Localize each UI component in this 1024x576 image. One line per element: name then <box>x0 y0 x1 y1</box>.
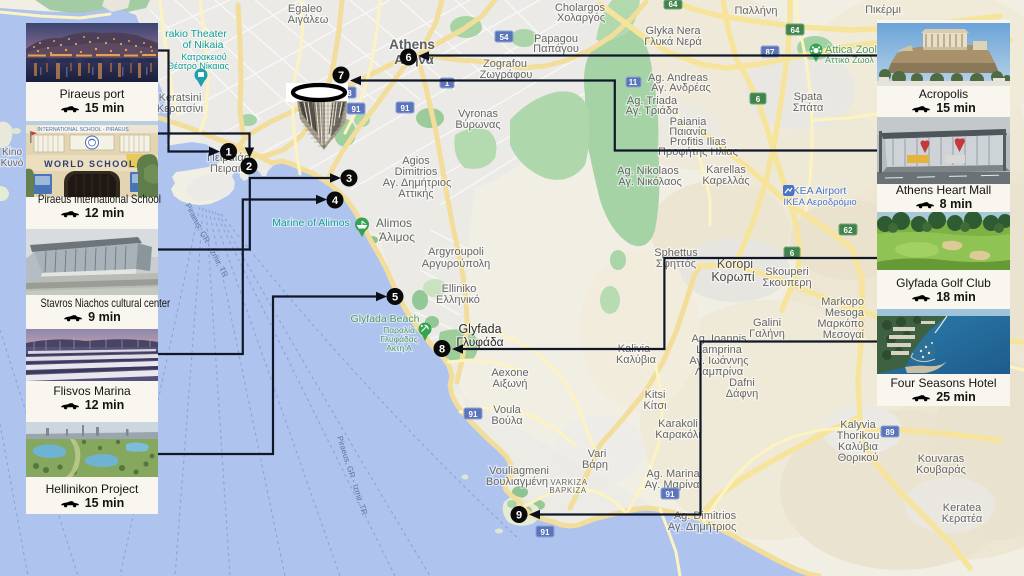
svg-text:Marine of Alimos: Marine of Alimos <box>272 217 350 229</box>
svg-text:Βουλιαγμένη: Βουλιαγμένη <box>486 476 548 488</box>
svg-text:Αγ. Δημήτριος: Αγ. Δημήτριος <box>668 521 737 533</box>
svg-text:64: 64 <box>669 0 678 9</box>
svg-text:WORLD SCHOOL: WORLD SCHOOL <box>44 159 136 169</box>
svg-text:Alimos: Alimos <box>376 216 412 230</box>
svg-text:Ελληνικό: Ελληνικό <box>436 294 480 306</box>
svg-text:6: 6 <box>790 249 795 258</box>
svg-text:Δάφνη: Δάφνη <box>726 388 758 400</box>
svg-text:Βάρη: Βάρη <box>582 459 608 471</box>
svg-text:Μεσογαί: Μεσογαί <box>823 329 865 341</box>
svg-text:INTERNATIONAL SCHOOL - PIRAEUS: INTERNATIONAL SCHOOL - PIRAEUS <box>37 127 129 133</box>
svg-text:91: 91 <box>541 528 550 537</box>
svg-text:Αγ. Ανδρέας: Αγ. Ανδρέας <box>651 82 711 94</box>
svg-text:7: 7 <box>338 70 344 82</box>
svg-text:Προφήτης Ηλίας: Προφήτης Ηλίας <box>658 146 738 158</box>
svg-text:Κερατέα: Κερατέα <box>942 513 983 525</box>
svg-text:Παπάγου: Παπάγου <box>533 43 579 55</box>
svg-text:ΙΚΕΑ Αεροδρόμιο: ΙΚΕΑ Αεροδρόμιο <box>783 197 856 208</box>
svg-text:Ζωγράφου: Ζωγράφου <box>480 69 533 81</box>
svg-text:2: 2 <box>246 161 252 173</box>
svg-text:Γλυκά Νερά: Γλυκά Νερά <box>644 36 702 48</box>
svg-text:8: 8 <box>439 344 445 356</box>
svg-text:91: 91 <box>666 490 675 499</box>
svg-text:Σκουπερη: Σκουπερη <box>762 277 811 289</box>
svg-text:91: 91 <box>469 410 478 419</box>
svg-text:Κουβαράς: Κουβαράς <box>916 464 966 476</box>
svg-text:Glyfada: Glyfada <box>458 322 501 336</box>
svg-text:Σφηττός: Σφηττός <box>656 258 696 270</box>
svg-text:6: 6 <box>405 52 411 64</box>
svg-text:5: 5 <box>392 292 398 304</box>
svg-text:91: 91 <box>352 105 361 114</box>
svg-text:1: 1 <box>225 147 231 159</box>
svg-text:Βούλα: Βούλα <box>491 415 523 427</box>
svg-text:Χολαργός: Χολαργός <box>557 12 605 24</box>
svg-text:6: 6 <box>756 95 761 104</box>
svg-text:Glyfada Beach: Glyfada Beach <box>351 313 420 325</box>
svg-text:Αιξωνή: Αιξωνή <box>493 378 528 390</box>
svg-text:Argyroupoli: Argyroupoli <box>428 246 484 258</box>
svg-text:64: 64 <box>791 26 800 35</box>
svg-text:54: 54 <box>500 33 509 42</box>
svg-text:Καρακόλι: Καρακόλι <box>655 429 701 441</box>
svg-text:Κίτσι: Κίτσι <box>643 400 667 412</box>
svg-text:Γλυφάδα: Γλυφάδα <box>456 335 503 349</box>
svg-text:Αργυρούπολη: Αργυρούπολη <box>422 258 490 270</box>
svg-text:Σπάτα: Σπάτα <box>793 102 824 114</box>
svg-text:Αιγάλεω: Αιγάλεω <box>288 14 329 26</box>
svg-text:Αγ. Νικόλαος: Αγ. Νικόλαος <box>618 176 682 188</box>
svg-text:62: 62 <box>844 226 853 235</box>
svg-text:IKEA Airport: IKEA Airport <box>790 185 847 197</box>
svg-text:ΒΑΡΚΙΖΑ: ΒΑΡΚΙΖΑ <box>549 486 586 495</box>
svg-text:Κερατσίνι: Κερατσίνι <box>157 103 204 115</box>
svg-text:Κορωπί: Κορωπί <box>711 270 754 284</box>
svg-text:Θορικού: Θορικού <box>838 452 879 464</box>
svg-text:Καλύβια: Καλύβια <box>616 354 657 366</box>
svg-text:4: 4 <box>332 195 339 207</box>
svg-text:8: 8 <box>347 89 352 98</box>
svg-text:Παλλήνη: Παλλήνη <box>734 5 777 17</box>
svg-text:Γαλήνη: Γαλήνη <box>749 328 785 340</box>
svg-text:Αττικής: Αττικής <box>398 188 433 200</box>
svg-text:11: 11 <box>629 78 638 87</box>
svg-text:3: 3 <box>346 173 352 185</box>
svg-text:Λαμπρίνα: Λαμπρίνα <box>695 366 744 378</box>
svg-text:9: 9 <box>516 510 522 522</box>
svg-text:Κυνό: Κυνό <box>1 157 24 169</box>
svg-text:Βύρωνας: Βύρωνας <box>455 119 500 131</box>
svg-text:of Nikaia: of Nikaia <box>183 39 224 51</box>
svg-text:Πικέρμι: Πικέρμι <box>865 4 901 16</box>
svg-text:Ακτή Α: Ακτή Α <box>386 343 412 353</box>
svg-text:Kino: Kino <box>2 147 22 158</box>
svg-text:89: 89 <box>886 428 895 437</box>
svg-text:Αγ. Τριάδα: Αγ. Τριάδα <box>626 105 679 117</box>
svg-text:91: 91 <box>401 104 410 113</box>
svg-text:Καρελλάς: Καρελλάς <box>702 175 749 187</box>
svg-text:Άλιμος: Άλιμος <box>379 230 415 244</box>
